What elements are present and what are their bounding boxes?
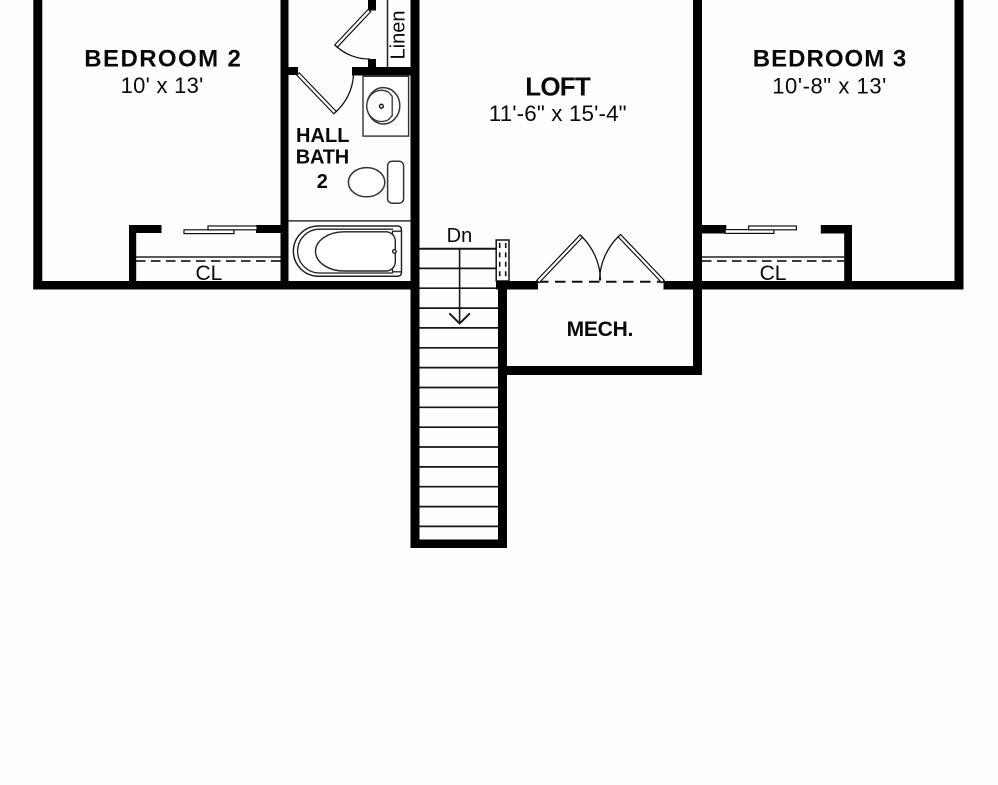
svg-text:BEDROOM 2: BEDROOM 2 (84, 46, 241, 73)
svg-text:CL: CL (195, 262, 222, 285)
svg-text:BEDROOM 3: BEDROOM 3 (753, 46, 907, 73)
svg-text:LOFT: LOFT (525, 72, 591, 102)
svg-text:10' x 13': 10' x 13' (121, 73, 204, 98)
svg-text:MECH.: MECH. (567, 318, 634, 341)
svg-text:BATH: BATH (296, 147, 350, 169)
svg-text:HALL: HALL (296, 125, 350, 147)
svg-text:11'-6" x 15'-4": 11'-6" x 15'-4" (489, 101, 627, 126)
svg-text:Dn: Dn (447, 225, 473, 247)
svg-text:Linen: Linen (388, 11, 410, 60)
svg-text:2: 2 (317, 171, 328, 193)
svg-text:10'-8" x 13': 10'-8" x 13' (772, 73, 886, 98)
svg-text:CL: CL (760, 262, 787, 285)
